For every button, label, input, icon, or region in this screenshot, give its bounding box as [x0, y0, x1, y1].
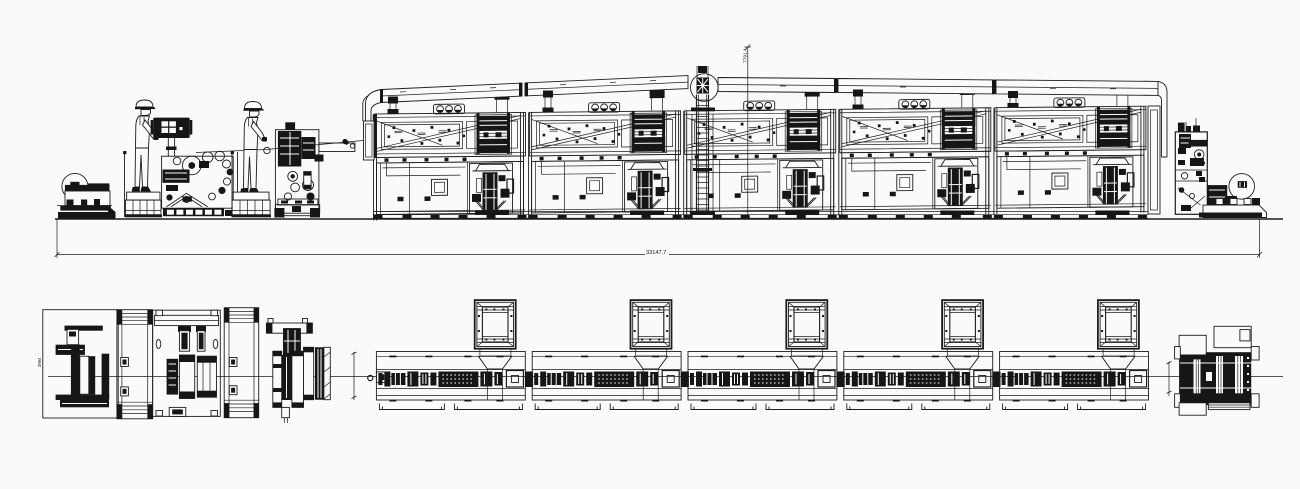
svg-text:7791.4: 7791.4 — [743, 48, 749, 63]
svg-text:3994: 3994 — [37, 357, 42, 367]
svg-text:33147.7: 33147.7 — [646, 250, 666, 256]
